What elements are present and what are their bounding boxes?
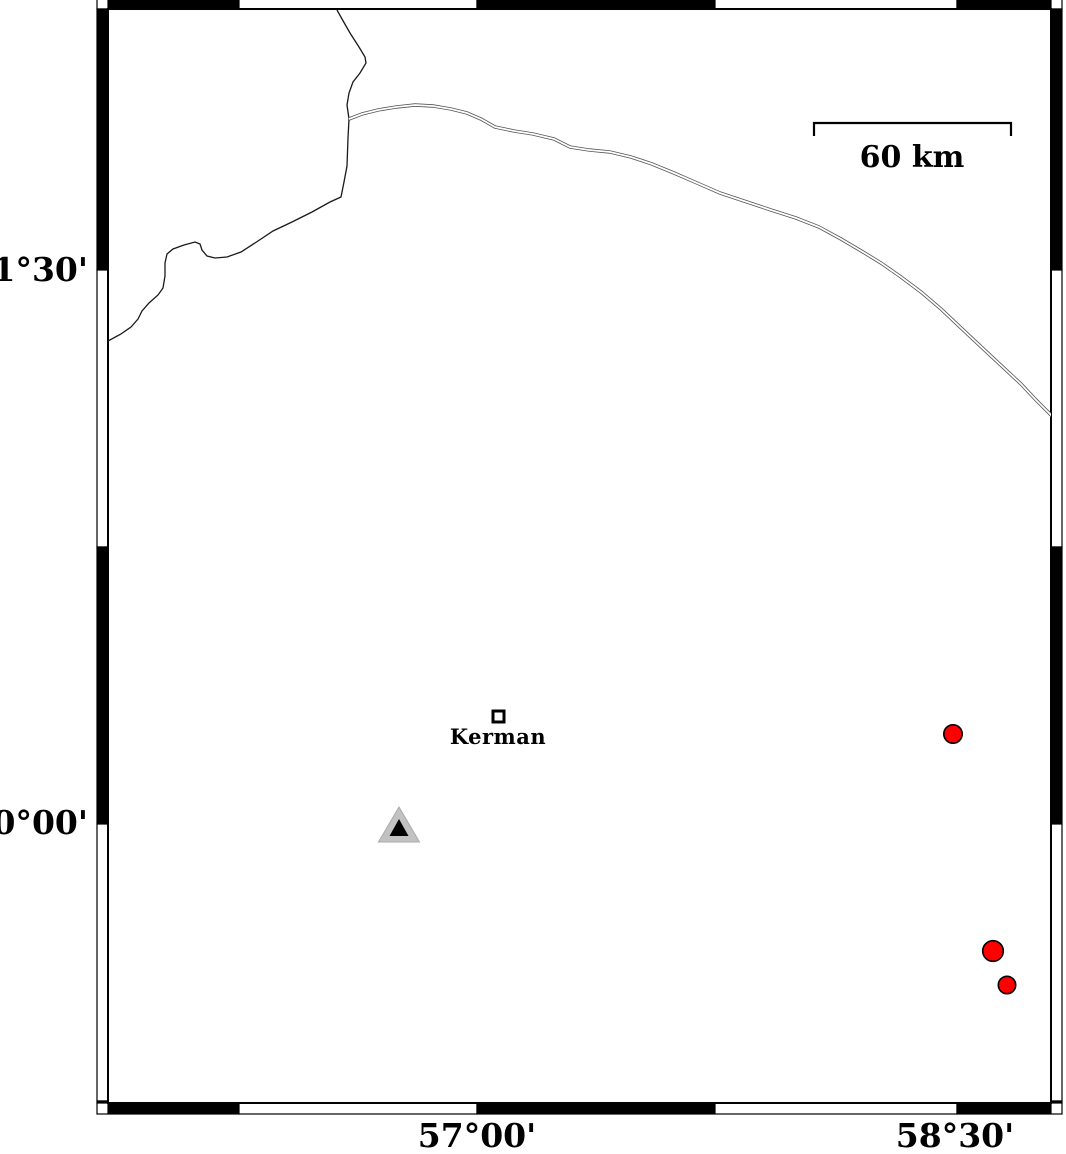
city-square-marker — [493, 711, 504, 722]
frame-cell-bottom — [715, 1103, 957, 1114]
frame-cell-left — [97, 824, 108, 1101]
frame-cell-left — [97, 270, 108, 547]
frame-cell-right — [1051, 9, 1062, 270]
map-line-features — [108, 10, 1052, 416]
boundary-line — [108, 10, 366, 341]
map-markers — [379, 711, 1016, 994]
frame-cell-bottom — [108, 1103, 239, 1114]
epicenter-marker — [998, 976, 1015, 993]
frame-cell-top — [957, 0, 1051, 9]
frame-cell-left — [97, 547, 108, 824]
frame-cell-bottom — [239, 1103, 477, 1114]
map-figure: { "figure": { "type": "geographic-map", … — [0, 0, 1066, 1154]
frame-cell-bottom — [477, 1103, 715, 1114]
lon-label-58-30: 58°30' — [896, 1116, 1014, 1154]
frame-cell-top — [477, 0, 715, 9]
scale-bar: 60 km — [814, 123, 1011, 175]
scale-bar-label: 60 km — [860, 140, 965, 175]
frame-cell-top — [715, 0, 957, 9]
axis-labels: 31°30' 30°00' 57°00' 58°30' — [0, 250, 1014, 1154]
frame-cell-bottom — [957, 1103, 1051, 1114]
lat-label-31-30: 31°30' — [0, 250, 88, 289]
frame-cell-left — [97, 0, 108, 9]
lat-label-30-00: 30°00' — [0, 803, 88, 842]
frame-cell-right — [1051, 547, 1062, 824]
frame-cell-right — [1051, 824, 1062, 1101]
epicenter-marker — [983, 941, 1004, 962]
scale-bar-bracket — [814, 123, 1011, 136]
city-label: Kerman — [450, 724, 546, 749]
map-canvas: 60 km 31°30' 30°00' 57°00' 58°30' Kerman — [0, 0, 1066, 1154]
epicenter-marker — [944, 725, 962, 743]
frame-cell-right — [1051, 1103, 1062, 1114]
lon-label-57-00: 57°00' — [418, 1116, 536, 1154]
frame-cell-left — [97, 1103, 108, 1114]
frame-cell-right — [1051, 0, 1062, 9]
frame-cell-right — [1051, 270, 1062, 547]
frame-cell-left — [97, 9, 108, 270]
frame-cell-top — [239, 0, 477, 9]
frame-cell-top — [108, 0, 239, 9]
